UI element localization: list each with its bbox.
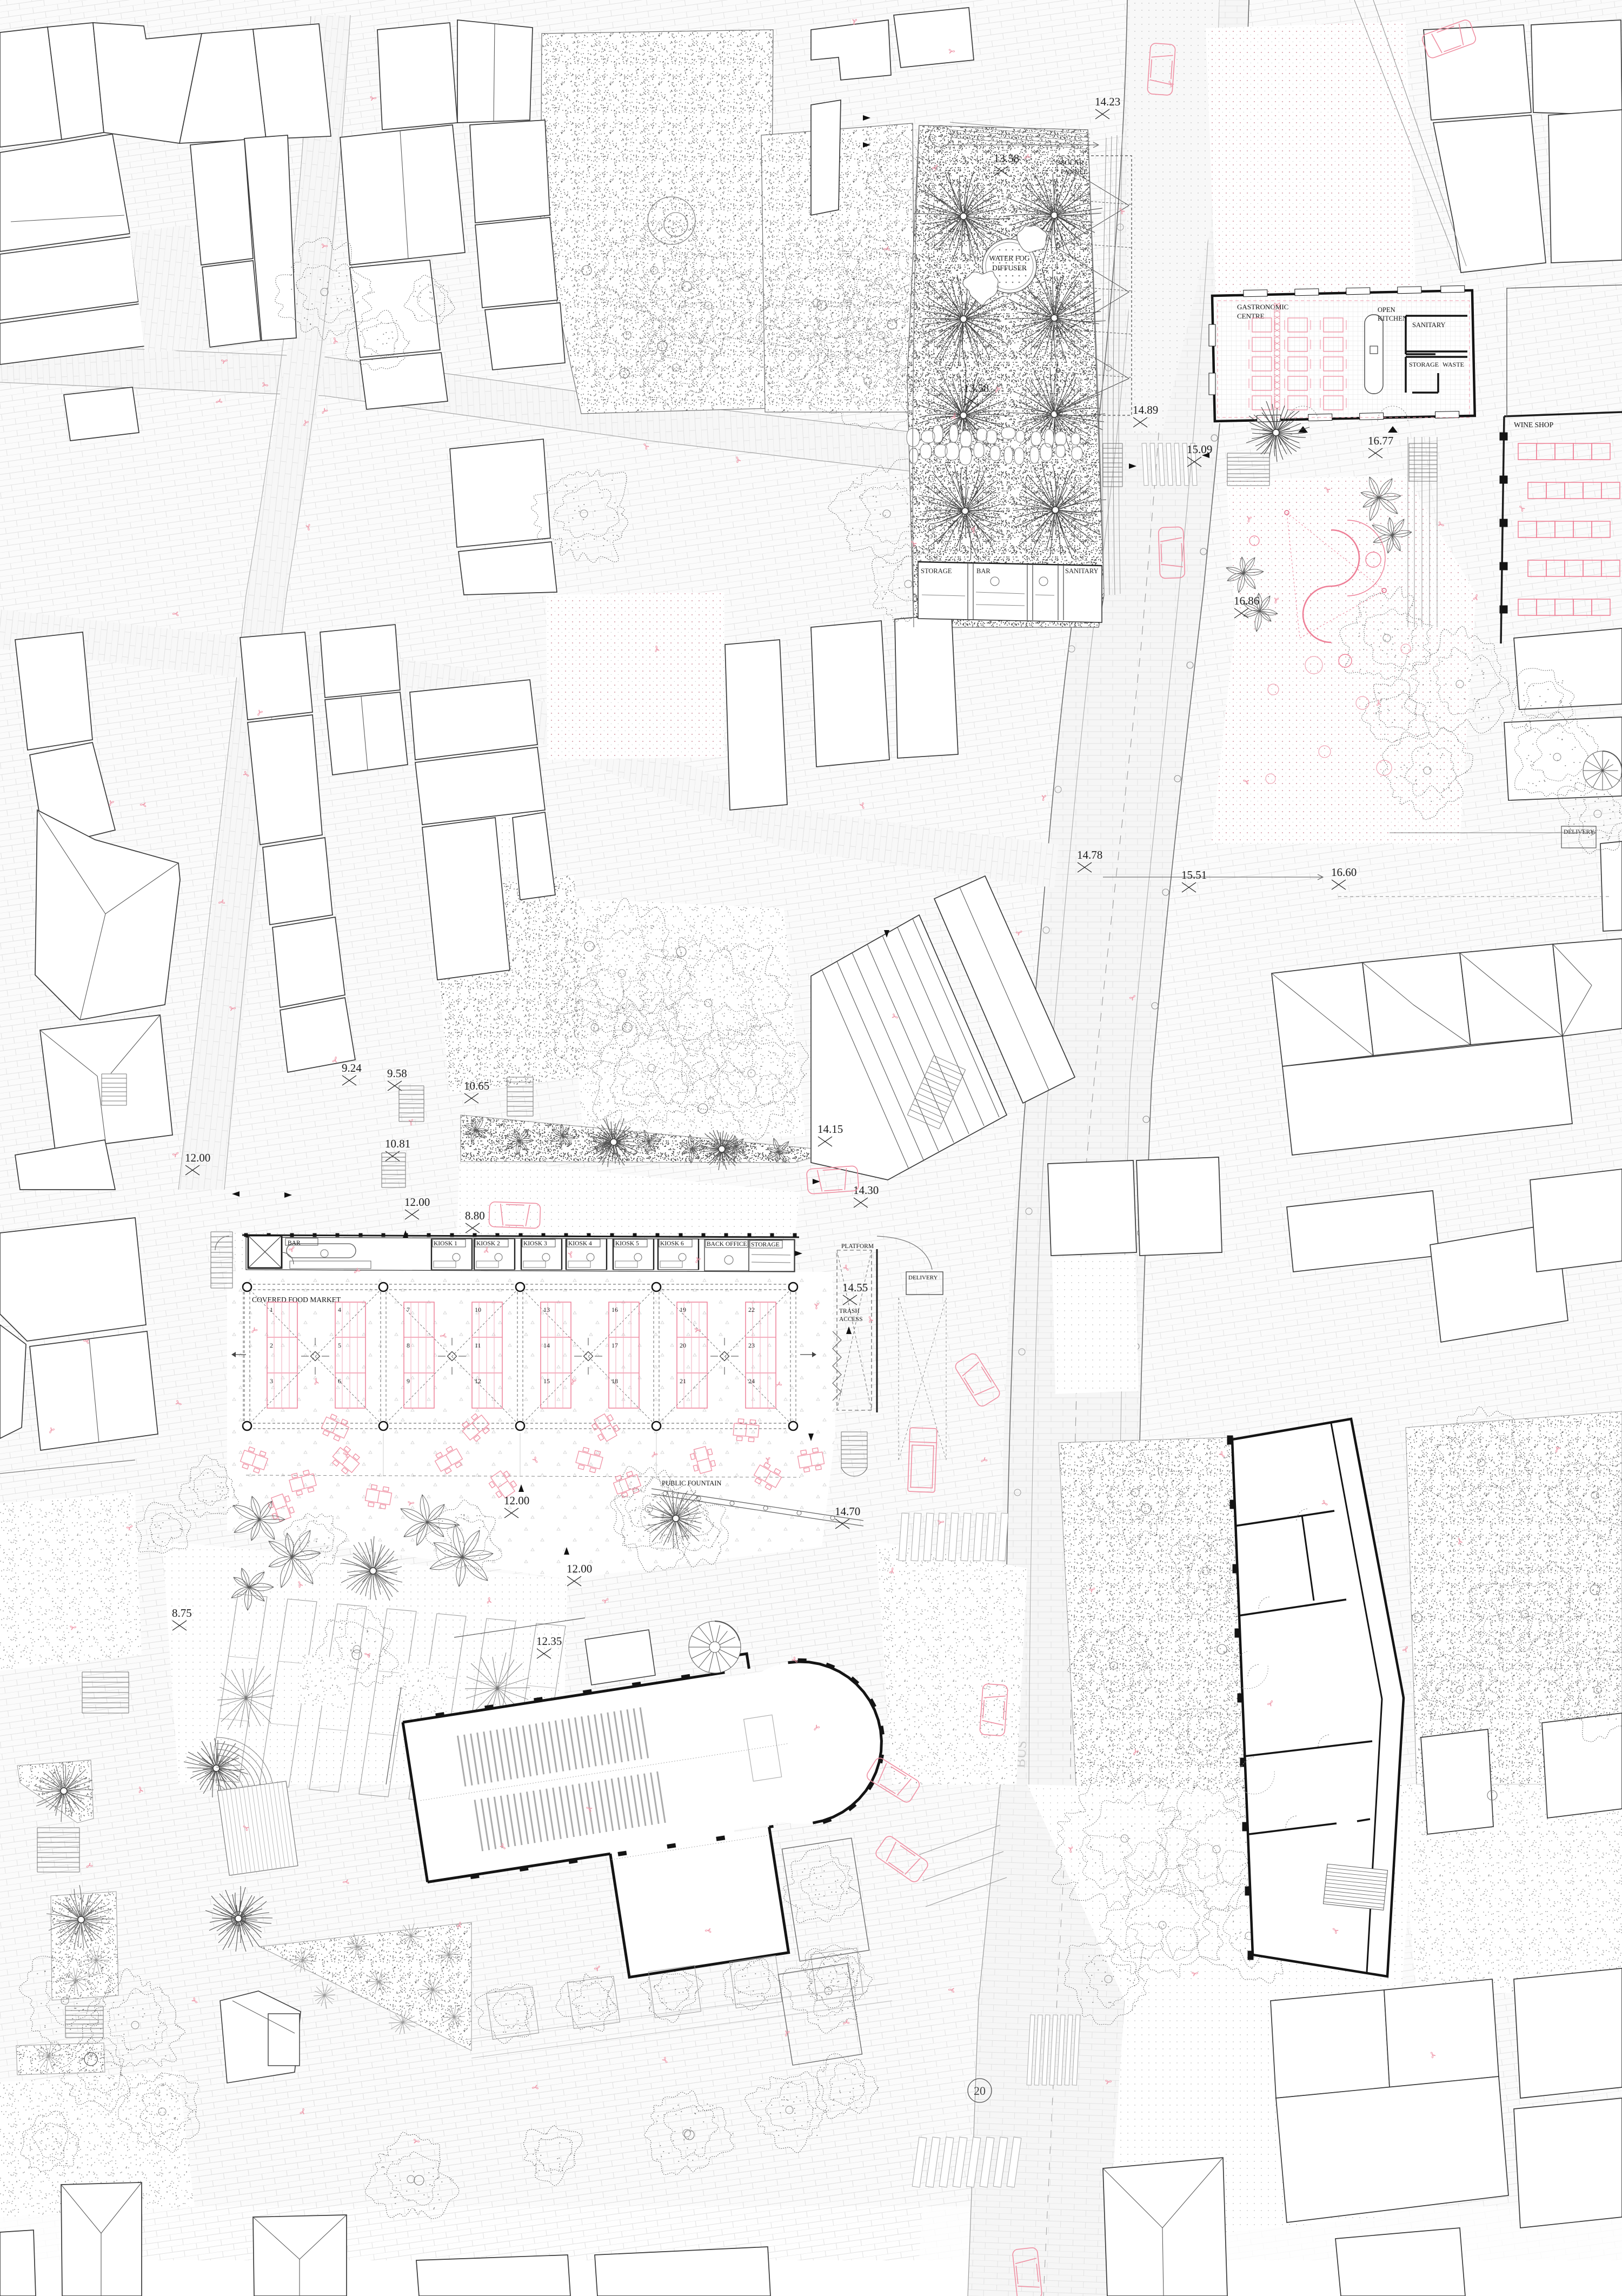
svg-text:12: 12	[475, 1377, 481, 1385]
svg-text:14.30: 14.30	[853, 1184, 879, 1197]
svg-text:SOLAR: SOLAR	[1061, 158, 1084, 167]
svg-text:WINE SHOP: WINE SHOP	[1514, 421, 1553, 429]
svg-text:12.00: 12.00	[567, 1562, 592, 1575]
svg-text:TRASH: TRASH	[839, 1308, 860, 1315]
svg-text:23: 23	[748, 1342, 755, 1349]
svg-text:STORAGE: STORAGE	[1409, 361, 1439, 368]
svg-text:2: 2	[270, 1342, 273, 1349]
svg-text:4: 4	[338, 1306, 341, 1313]
svg-text:OPEN: OPEN	[1378, 306, 1395, 314]
svg-text:KIOSK 2: KIOSK 2	[476, 1240, 500, 1247]
svg-text:16.86: 16.86	[1234, 594, 1259, 607]
svg-text:8: 8	[407, 1342, 410, 1349]
svg-text:20: 20	[680, 1342, 686, 1349]
svg-text:14.55: 14.55	[842, 1281, 868, 1294]
svg-text:3: 3	[270, 1377, 273, 1385]
svg-text:14.23: 14.23	[1095, 95, 1120, 108]
svg-text:5: 5	[338, 1342, 341, 1349]
svg-text:BACK OFFICE: BACK OFFICE	[707, 1241, 747, 1247]
svg-text:STORAGE: STORAGE	[921, 567, 952, 575]
svg-text:KIOSK 1: KIOSK 1	[434, 1240, 457, 1247]
svg-text:14: 14	[543, 1342, 550, 1349]
svg-text:12.00: 12.00	[504, 1494, 529, 1507]
svg-text:14.89: 14.89	[1133, 403, 1158, 416]
svg-text:20: 20	[974, 2084, 986, 2098]
svg-text:GASTRONOMIC: GASTRONOMIC	[1237, 303, 1288, 311]
svg-text:10.65: 10.65	[464, 1079, 489, 1092]
svg-text:9.24: 9.24	[342, 1061, 362, 1074]
svg-text:10: 10	[475, 1306, 481, 1313]
svg-text:8.75: 8.75	[172, 1607, 192, 1620]
svg-text:18: 18	[611, 1377, 618, 1385]
svg-text:10.81: 10.81	[385, 1137, 410, 1150]
svg-text:14.15: 14.15	[817, 1123, 843, 1136]
svg-text:24: 24	[748, 1377, 755, 1385]
svg-text:PANNEL: PANNEL	[1061, 168, 1088, 176]
svg-text:16: 16	[611, 1306, 618, 1313]
svg-text:12.00: 12.00	[404, 1196, 430, 1209]
svg-text:13: 13	[543, 1306, 550, 1313]
svg-text:KIOSK 3: KIOSK 3	[523, 1240, 547, 1247]
svg-text:12.00: 12.00	[185, 1151, 210, 1164]
svg-text:SANITARY: SANITARY	[1065, 567, 1099, 575]
svg-text:1: 1	[270, 1306, 273, 1313]
svg-text:KIOSK 5: KIOSK 5	[615, 1240, 639, 1247]
svg-text:DELIVERY: DELIVERY	[908, 1275, 938, 1281]
svg-text:DIFFUSER: DIFFUSER	[992, 264, 1027, 272]
svg-text:9.58: 9.58	[387, 1067, 407, 1080]
svg-text:22: 22	[748, 1306, 755, 1313]
svg-text:8.80: 8.80	[465, 1209, 485, 1222]
svg-text:KIOSK 4: KIOSK 4	[568, 1240, 592, 1247]
svg-text:DELIVERY: DELIVERY	[1564, 829, 1595, 835]
svg-text:16.60: 16.60	[1331, 866, 1357, 879]
svg-text:13.58: 13.58	[994, 152, 1019, 165]
svg-text:21: 21	[680, 1377, 686, 1385]
svg-text:16.77: 16.77	[1368, 434, 1393, 447]
svg-text:KITCHEN: KITCHEN	[1378, 315, 1407, 322]
svg-text:19: 19	[680, 1306, 686, 1313]
svg-text:7: 7	[407, 1306, 410, 1313]
svg-text:PLATFORM: PLATFORM	[841, 1243, 874, 1250]
svg-text:STORAGE: STORAGE	[751, 1242, 780, 1248]
svg-text:ACCESS: ACCESS	[839, 1316, 862, 1323]
svg-text:KIOSK 6: KIOSK 6	[660, 1240, 684, 1247]
svg-text:15.51: 15.51	[1181, 868, 1207, 881]
svg-text:11: 11	[475, 1342, 481, 1349]
svg-text:9: 9	[407, 1377, 410, 1385]
svg-text:14.78: 14.78	[1077, 848, 1102, 861]
svg-text:17: 17	[611, 1342, 618, 1349]
svg-text:CENTRE: CENTRE	[1237, 312, 1265, 320]
svg-text:SANITARY: SANITARY	[1412, 321, 1446, 329]
svg-text:WASTE: WASTE	[1442, 361, 1464, 368]
svg-text:BAR: BAR	[976, 567, 991, 575]
svg-text:15: 15	[543, 1377, 550, 1385]
svg-text:PUBLIC FOUNTAIN: PUBLIC FOUNTAIN	[662, 1479, 721, 1487]
svg-text:WATER FOG: WATER FOG	[989, 254, 1030, 262]
svg-text:13.58: 13.58	[963, 382, 989, 395]
svg-text:12.35: 12.35	[536, 1635, 562, 1648]
svg-text:14.70: 14.70	[835, 1505, 860, 1518]
svg-text:6: 6	[338, 1377, 341, 1385]
